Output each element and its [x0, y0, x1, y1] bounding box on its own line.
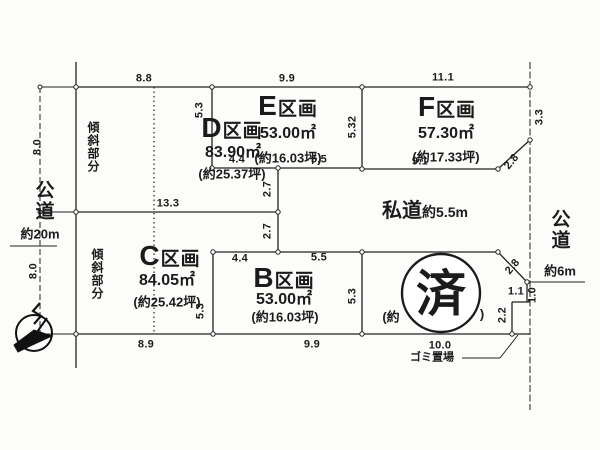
north-compass-icon: [14, 303, 52, 352]
sold-stamp-text: 済: [416, 269, 466, 319]
plot-f-suffix: 区画: [436, 100, 476, 121]
east-road-width: 約6m: [544, 265, 576, 278]
west-road-width: 約20m: [20, 228, 59, 241]
dim-a-left: 5.3: [348, 288, 359, 304]
dim-road-upper: 2.7: [263, 181, 274, 197]
slope-label-upper: 傾斜部分: [87, 121, 99, 173]
dim-a-east: 1.0: [528, 287, 539, 303]
plot-e-suffix: 区画: [278, 99, 318, 120]
dim-e-left: 5.3: [195, 102, 206, 118]
east-road-name: 公道: [550, 209, 569, 251]
private-road-name: 私道: [382, 200, 422, 222]
dim-b-top-left: 4.4: [232, 254, 248, 265]
plot-c-suffix: 区画: [161, 249, 201, 270]
dim-top-e: 9.9: [279, 74, 295, 85]
dim-e-bottom-right: 5.5: [311, 155, 327, 166]
dim-top-f: 11.1: [432, 73, 454, 84]
plot-d-name: D区画: [201, 114, 262, 142]
dim-e-right: 5.32: [348, 116, 359, 139]
plot-d-suffix: 区画: [223, 121, 263, 142]
dim-bottom-a: 10.0: [429, 341, 452, 352]
dim-notch-height: 2.2: [498, 307, 509, 323]
dim-notch-width: 1.1: [508, 287, 524, 298]
plot-f-letter: F: [418, 91, 436, 122]
parcel-lines: [0, 0, 600, 450]
plot-b-letter: B: [253, 262, 274, 293]
plot-e-letter: E: [258, 90, 278, 121]
plot-c-area-tsubo: (約25.42坪): [133, 296, 200, 309]
plot-c-letter: C: [139, 240, 160, 271]
dim-bottom-b: 9.9: [304, 340, 320, 351]
dim-f-bottom: 9.1: [412, 157, 428, 168]
west-road-name: 公道: [34, 180, 53, 222]
dim-west-lower: 8.0: [29, 263, 40, 279]
dim-f-right: 3.3: [535, 109, 546, 125]
dim-b-top-right: 5.5: [311, 253, 327, 264]
plot-c-area-sqm: 84.05㎡: [139, 273, 195, 289]
plot-b-suffix: 区画: [275, 271, 315, 292]
land-plot-diagram: 8.8 9.9 11.1 8.0 8.0 公道 約20m 傾斜部分 傾斜部分 D…: [0, 0, 600, 450]
dim-e-bottom-left: 4.4: [229, 155, 245, 166]
dim-road-lower: 2.7: [263, 223, 274, 239]
dim-d-bottom: 13.3: [157, 199, 180, 210]
plot-e-name: E区画: [258, 92, 318, 120]
plot-d-area-tsubo: (約25.37坪): [198, 168, 265, 181]
plot-f-area-sqm: 57.30㎡: [418, 126, 474, 142]
plot-c-name: C区画: [139, 242, 200, 270]
dim-top-d: 8.8: [136, 74, 152, 85]
private-road-width: 約5.5m: [422, 204, 468, 220]
plot-b-name: B区画: [253, 264, 314, 292]
slope-label-lower: 傾斜部分: [91, 248, 103, 300]
dim-b-left: 5.3: [196, 303, 207, 319]
plot-b-area-tsubo: (約16.03坪): [251, 311, 318, 324]
garbage-area-label: ゴミ置場: [410, 353, 454, 364]
dim-bottom-c: 8.9: [138, 340, 154, 351]
sold-plot-tsubo-fragment-left: (約: [382, 311, 399, 324]
plot-e-area-sqm: 53.00㎡: [260, 126, 316, 142]
sold-plot-tsubo-fragment-right: ): [480, 308, 484, 321]
dim-west-upper: 8.0: [33, 139, 44, 155]
private-road-label: 私道約5.5m: [382, 201, 468, 221]
plot-f-name: F区画: [418, 93, 476, 121]
plot-b-area-sqm: 53.00㎡: [256, 292, 312, 308]
